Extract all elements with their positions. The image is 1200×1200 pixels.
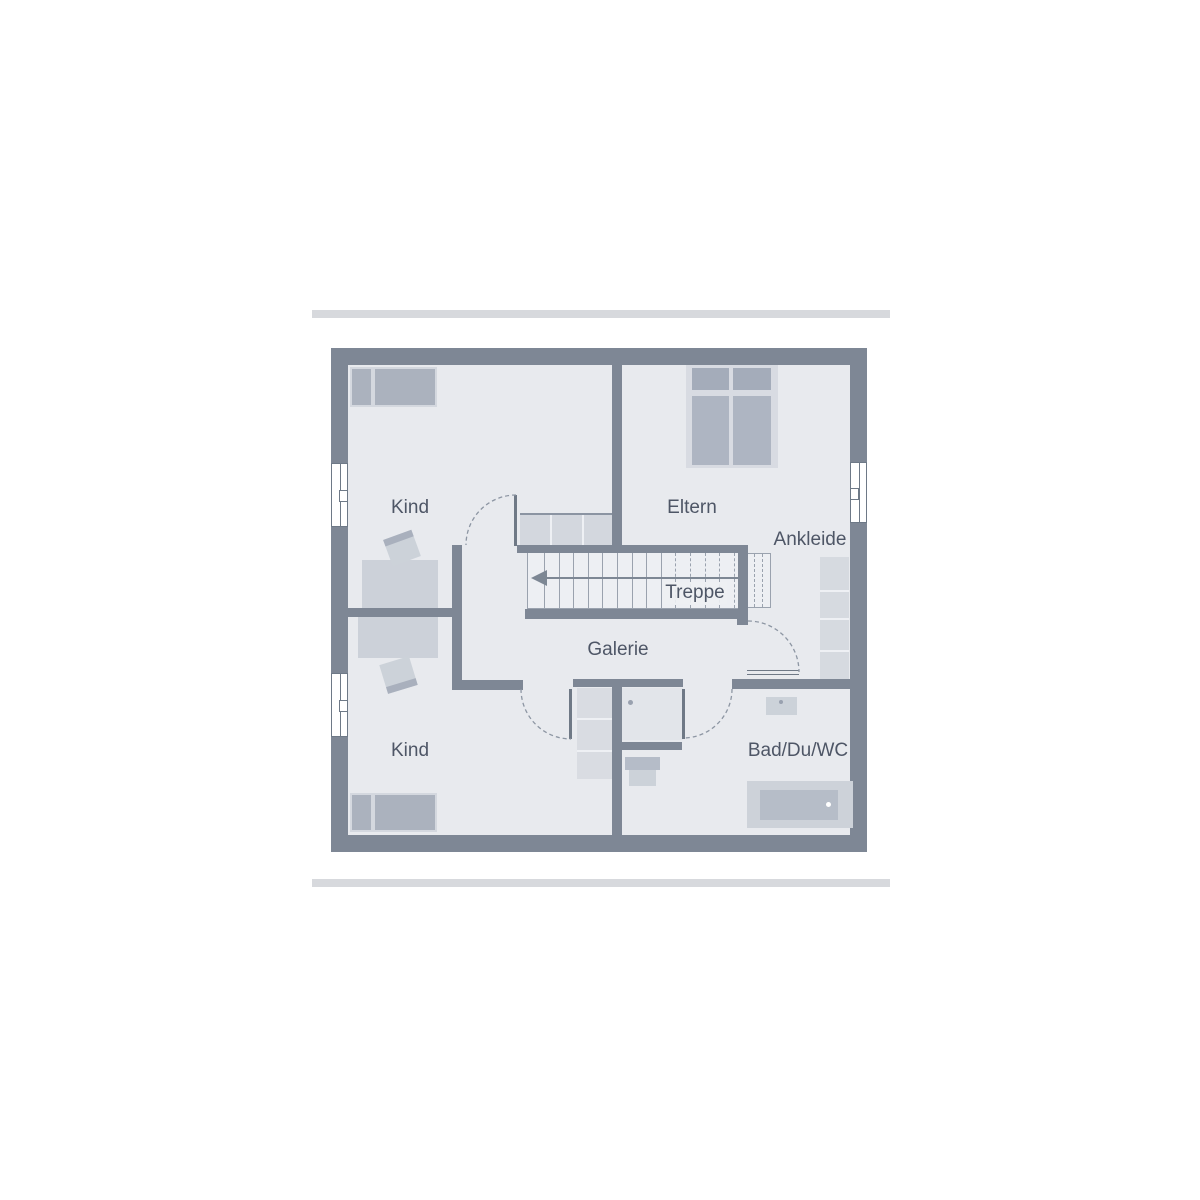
stair-tread xyxy=(632,553,633,608)
window-right xyxy=(850,462,867,523)
bathtub-drain xyxy=(826,802,831,807)
stair-direction-arrow xyxy=(531,570,547,586)
shower xyxy=(622,688,683,740)
wall-bath-top xyxy=(732,679,853,689)
bathtub xyxy=(747,781,853,828)
door-leaf-kind-top xyxy=(514,495,517,546)
bed-mattress-right xyxy=(733,396,771,465)
stair-direction-line xyxy=(547,577,740,579)
room-label-treppe: Treppe xyxy=(663,582,727,604)
wc-bowl xyxy=(629,770,656,786)
upper-stair-flight xyxy=(520,513,612,545)
room-label-bad-du-wc: Bad/Du/WC xyxy=(748,740,848,762)
wall-shower-bottom xyxy=(620,742,682,750)
room-label-kind-bottom: Kind xyxy=(391,740,429,762)
bed-pillow xyxy=(352,369,371,405)
wall-stair-bottom xyxy=(525,609,748,619)
wall-galerie-horizontal xyxy=(452,680,523,690)
door-leaf-ankleide xyxy=(747,670,799,675)
bottom-divider-bar xyxy=(312,879,890,887)
room-label-ankleide: Ankleide xyxy=(774,529,847,551)
stair-tread xyxy=(573,553,574,608)
wardrobe-kind-bottom xyxy=(577,688,612,779)
wall-kind-kind xyxy=(348,608,452,617)
wall-kind-eltern xyxy=(612,365,622,553)
wc-cistern xyxy=(625,757,660,770)
bed-mattress-left xyxy=(692,396,729,465)
shower-drain xyxy=(628,700,633,705)
sink-tap xyxy=(779,700,783,704)
stair-tread xyxy=(559,553,560,608)
sink xyxy=(766,697,797,715)
bed-pillow xyxy=(352,795,371,830)
bed-eltern xyxy=(686,365,778,468)
room-label-galerie: Galerie xyxy=(587,639,648,661)
stair-tread xyxy=(754,554,755,607)
bed-pillow-left xyxy=(692,368,729,390)
wall-nook-bath xyxy=(612,687,622,836)
stair-tread xyxy=(646,553,647,608)
floor-plan-page: Kind Eltern Ankleide Treppe Galerie Kind… xyxy=(0,0,1200,1200)
stair-tread xyxy=(762,554,763,607)
stair-tread xyxy=(734,553,735,608)
bed-kind-top xyxy=(350,367,437,407)
room-label-kind-top: Kind xyxy=(391,497,429,519)
bed-pillow-right xyxy=(733,368,771,390)
stair-tread xyxy=(661,553,662,608)
top-divider-bar xyxy=(312,310,890,318)
bathtub-inner xyxy=(760,790,838,820)
bed-kind-bottom xyxy=(350,793,437,832)
stair-tread xyxy=(602,553,603,608)
room-label-eltern: Eltern xyxy=(667,497,717,519)
bed-mattress xyxy=(375,369,435,405)
wall-nook-top xyxy=(573,679,683,687)
door-leaf-bad xyxy=(682,689,685,739)
window-left-upper xyxy=(331,463,348,527)
door-leaf-kind-bottom xyxy=(569,689,572,739)
stair-tread xyxy=(617,553,618,608)
desk-kind-top xyxy=(362,560,438,608)
stair-tread xyxy=(588,553,589,608)
wall-stair-top xyxy=(517,545,748,553)
wall-galerie-vertical xyxy=(452,545,462,680)
window-left-lower xyxy=(331,673,348,737)
wardrobe-ankleide xyxy=(820,557,849,679)
desk-kind-bottom xyxy=(358,617,438,658)
stair-treads-extension xyxy=(748,553,771,608)
bed-mattress xyxy=(375,795,435,830)
